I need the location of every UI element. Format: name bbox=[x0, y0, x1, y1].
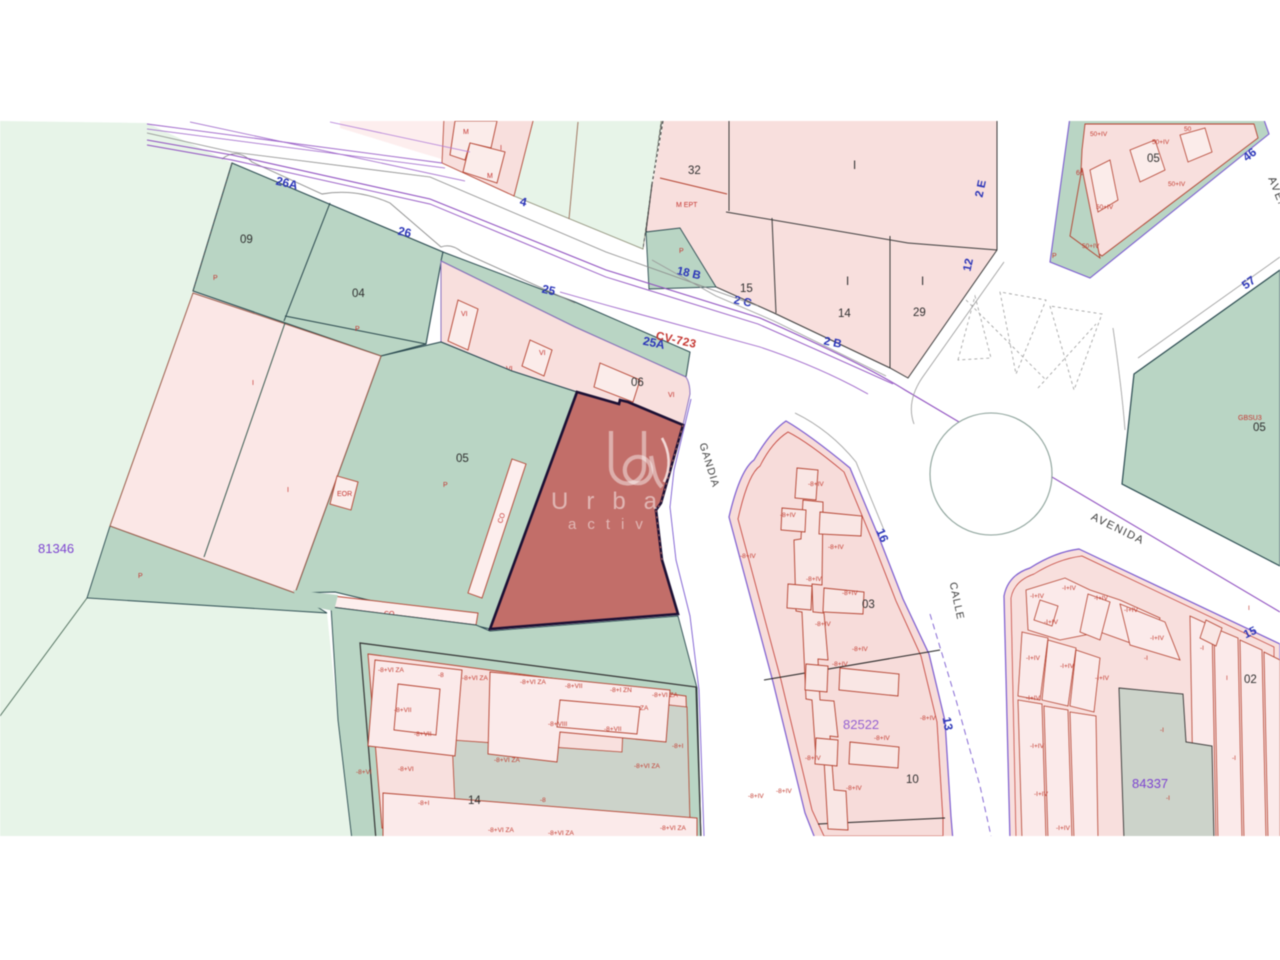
svg-text:-I: -I bbox=[1232, 755, 1236, 762]
svg-text:13: 13 bbox=[940, 716, 956, 732]
svg-text:-8+IV: -8+IV bbox=[805, 755, 821, 762]
svg-text:-8+VI ZA: -8+VI ZA bbox=[378, 667, 404, 674]
svg-text:-I+IV: -I+IV bbox=[1150, 635, 1165, 642]
svg-text:-I+IV: -I+IV bbox=[1026, 655, 1041, 662]
svg-text:P: P bbox=[443, 482, 448, 489]
svg-text:-8+VI ZA: -8+VI ZA bbox=[520, 679, 546, 686]
svg-text:P: P bbox=[355, 326, 360, 333]
svg-text:02: 02 bbox=[1244, 674, 1257, 686]
svg-text:-I+IV: -I+IV bbox=[1094, 595, 1109, 602]
svg-text:-I+IV: -I+IV bbox=[1030, 593, 1045, 600]
svg-text:50+IV: 50+IV bbox=[1096, 204, 1114, 211]
svg-text:VI: VI bbox=[461, 311, 468, 318]
svg-text:05: 05 bbox=[1253, 422, 1266, 434]
svg-text:GBSU3: GBSU3 bbox=[1238, 415, 1262, 422]
svg-text:-8+IV: -8+IV bbox=[780, 512, 796, 519]
svg-text:VI: VI bbox=[668, 392, 675, 399]
svg-text:-8+VI: -8+VI bbox=[398, 766, 414, 773]
svg-text:81346: 81346 bbox=[38, 541, 74, 556]
svg-text:I: I bbox=[252, 380, 254, 387]
svg-text:50+IV: 50+IV bbox=[1168, 181, 1186, 188]
svg-text:-8+VI ZA: -8+VI ZA bbox=[488, 827, 514, 834]
svg-text:03: 03 bbox=[862, 599, 875, 611]
svg-text:M EPT: M EPT bbox=[676, 202, 698, 209]
svg-text:50: 50 bbox=[1184, 126, 1192, 133]
svg-text:P: P bbox=[213, 275, 218, 282]
svg-text:-I+IV: -I+IV bbox=[1044, 619, 1059, 626]
svg-text:-8+VI: -8+VI bbox=[356, 769, 372, 776]
svg-text:04: 04 bbox=[352, 288, 365, 300]
svg-text:-8+IV: -8+IV bbox=[815, 621, 831, 628]
svg-text:05: 05 bbox=[1147, 153, 1160, 165]
svg-text:32: 32 bbox=[688, 165, 701, 177]
svg-text:-I+IV: -I+IV bbox=[1095, 675, 1110, 682]
svg-text:-8: -8 bbox=[540, 797, 546, 804]
svg-text:M: M bbox=[463, 129, 469, 136]
svg-text:-8+VIII: -8+VIII bbox=[548, 721, 568, 728]
svg-text:-I: -I bbox=[1160, 727, 1164, 734]
svg-text:-8+VI ZA: -8+VI ZA bbox=[548, 830, 574, 837]
svg-text:-I: -I bbox=[1166, 795, 1170, 802]
svg-text:-8+VI ZA: -8+VI ZA bbox=[634, 763, 660, 770]
svg-text:-8+IV: -8+IV bbox=[806, 576, 822, 583]
svg-text:-8+VI ZA: -8+VI ZA bbox=[660, 825, 686, 832]
svg-text:-I: -I bbox=[1200, 645, 1204, 652]
svg-text:-I+IV: -I+IV bbox=[1030, 743, 1045, 750]
svg-text:-8+IV: -8+IV bbox=[832, 661, 848, 668]
svg-text:-8+IV: -8+IV bbox=[808, 481, 824, 488]
svg-text:50+IV: 50+IV bbox=[1152, 139, 1170, 146]
svg-text:66: 66 bbox=[1076, 170, 1084, 177]
svg-text:-8+IV: -8+IV bbox=[852, 646, 868, 653]
svg-text:I: I bbox=[846, 276, 849, 288]
svg-text:Urba: Urba bbox=[551, 488, 675, 515]
svg-text:-8+IV: -8+IV bbox=[842, 590, 858, 597]
svg-text:50+IV: 50+IV bbox=[1090, 131, 1108, 138]
svg-text:-8+IV: -8+IV bbox=[740, 553, 756, 560]
svg-text:-I+IV: -I+IV bbox=[1124, 607, 1139, 614]
svg-text:P: P bbox=[679, 248, 684, 255]
svg-text:10: 10 bbox=[906, 774, 919, 786]
svg-text:M: M bbox=[487, 173, 493, 180]
svg-text:-8+I ZN: -8+I ZN bbox=[610, 687, 632, 694]
svg-text:-8+VII: -8+VII bbox=[565, 683, 583, 690]
svg-text:06: 06 bbox=[631, 377, 644, 389]
svg-text:-I+IV: -I+IV bbox=[1060, 663, 1075, 670]
svg-text:-8+VI ZA: -8+VI ZA bbox=[494, 757, 520, 764]
svg-text:-8+IV: -8+IV bbox=[874, 735, 890, 742]
svg-text:-8+IV: -8+IV bbox=[776, 788, 792, 795]
svg-text:-8+VII: -8+VII bbox=[394, 707, 412, 714]
svg-text:-8+I: -8+I bbox=[418, 800, 430, 807]
svg-text:I: I bbox=[1226, 675, 1228, 682]
svg-text:-8+IV: -8+IV bbox=[920, 715, 936, 722]
svg-text:50+IV: 50+IV bbox=[1082, 243, 1100, 250]
svg-text:14: 14 bbox=[468, 795, 481, 807]
svg-text:-I+IV: -I+IV bbox=[1056, 825, 1071, 832]
svg-text:-8+VI ZA: -8+VI ZA bbox=[462, 675, 488, 682]
svg-text:15: 15 bbox=[740, 283, 753, 295]
svg-text:-8+IV: -8+IV bbox=[828, 544, 844, 551]
svg-text:-8+VII: -8+VII bbox=[414, 731, 432, 738]
svg-text:I: I bbox=[500, 145, 502, 152]
svg-text:-8+VII: -8+VII bbox=[604, 726, 622, 733]
svg-text:P: P bbox=[138, 573, 143, 580]
svg-text:-8: -8 bbox=[438, 672, 444, 679]
svg-text:-8+IV: -8+IV bbox=[748, 793, 764, 800]
svg-text:-I+IV: -I+IV bbox=[1034, 791, 1049, 798]
svg-text:I: I bbox=[853, 160, 856, 172]
svg-text:VI: VI bbox=[539, 350, 546, 357]
svg-text:-8+I: -8+I bbox=[672, 743, 684, 750]
svg-text:-8+VI ZA: -8+VI ZA bbox=[652, 692, 678, 699]
svg-text:I: I bbox=[287, 487, 289, 494]
svg-text:05: 05 bbox=[456, 453, 469, 465]
svg-text:-I+IV: -I+IV bbox=[1062, 585, 1077, 592]
svg-text:P: P bbox=[1052, 253, 1057, 260]
svg-text:09: 09 bbox=[240, 234, 253, 246]
svg-text:I: I bbox=[1248, 605, 1250, 612]
svg-text:-I: -I bbox=[1144, 655, 1148, 662]
svg-text:-8+IV: -8+IV bbox=[846, 785, 862, 792]
svg-text:ZA: ZA bbox=[640, 705, 649, 712]
svg-text:82522: 82522 bbox=[843, 717, 879, 732]
svg-text:EOR: EOR bbox=[337, 491, 352, 498]
svg-text:activ: activ bbox=[568, 516, 654, 533]
svg-text:I: I bbox=[921, 276, 924, 288]
svg-text:29: 29 bbox=[913, 307, 926, 319]
svg-text:14: 14 bbox=[838, 308, 851, 320]
svg-text:-I+IV: -I+IV bbox=[1026, 695, 1041, 702]
svg-text:84337: 84337 bbox=[1132, 776, 1168, 791]
